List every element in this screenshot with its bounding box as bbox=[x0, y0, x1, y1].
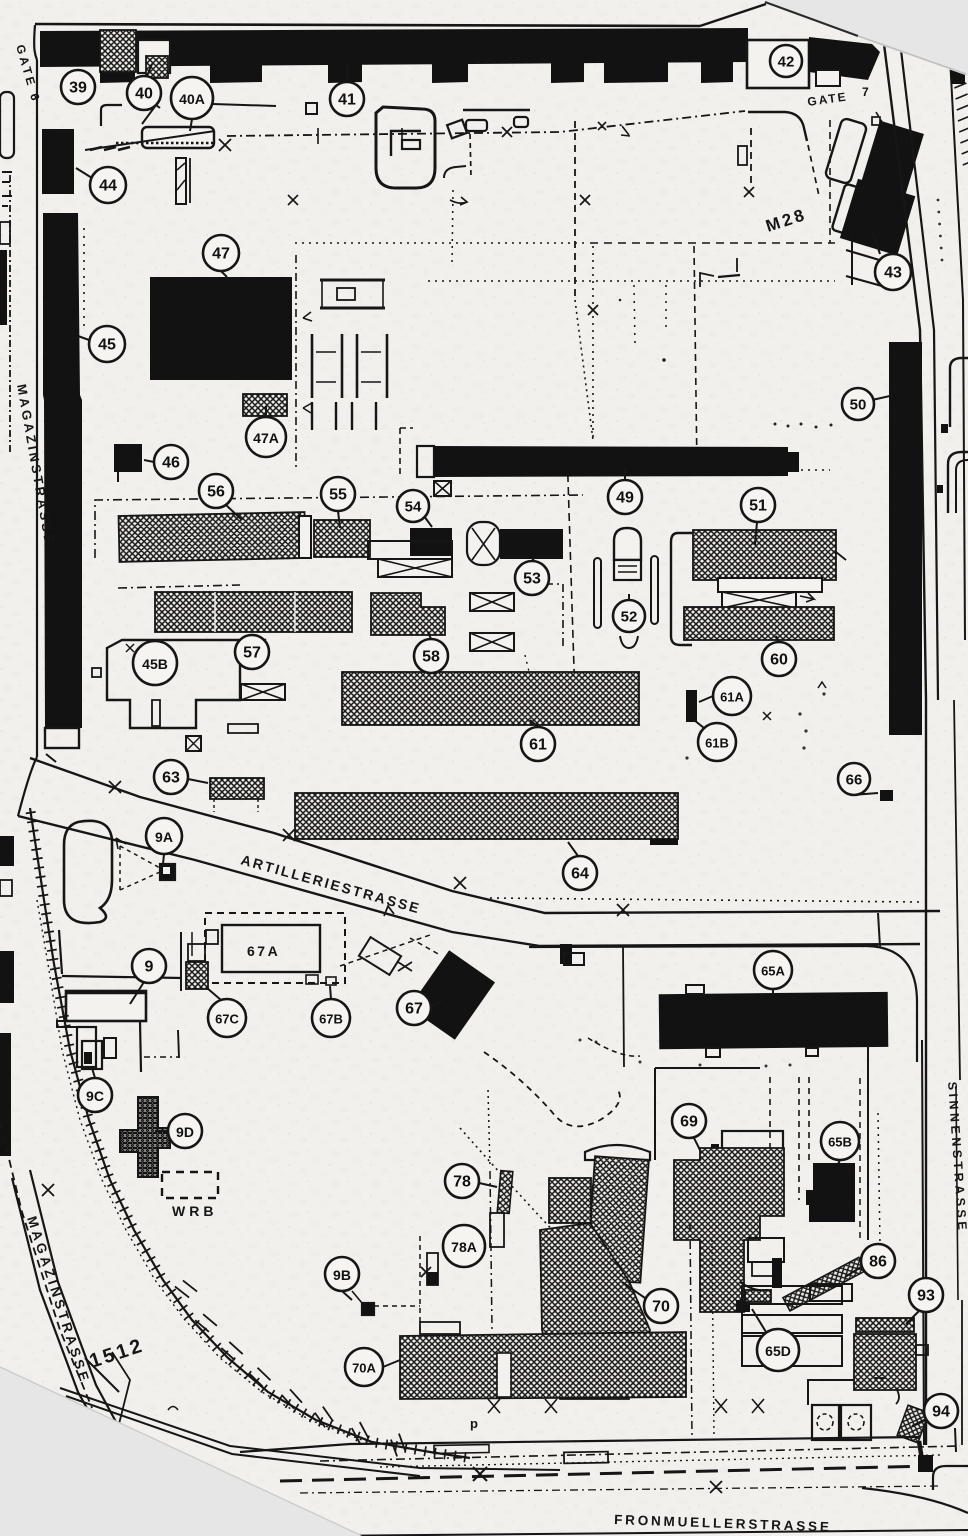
svg-text:61B: 61B bbox=[705, 736, 729, 751]
svg-text:64: 64 bbox=[571, 866, 589, 883]
svg-text:49: 49 bbox=[616, 490, 634, 507]
svg-text:44: 44 bbox=[99, 178, 117, 195]
svg-text:52: 52 bbox=[621, 609, 638, 626]
svg-text:45B: 45B bbox=[142, 656, 168, 672]
svg-text:56: 56 bbox=[207, 484, 225, 501]
svg-text:43: 43 bbox=[884, 265, 902, 282]
svg-text:47: 47 bbox=[212, 246, 230, 263]
svg-text:54: 54 bbox=[405, 499, 422, 516]
svg-text:61A: 61A bbox=[720, 690, 744, 705]
svg-text:86: 86 bbox=[869, 1254, 887, 1271]
svg-text:42: 42 bbox=[778, 54, 795, 71]
svg-text:50: 50 bbox=[850, 397, 867, 414]
svg-text:78A: 78A bbox=[451, 1239, 477, 1255]
svg-text:65B: 65B bbox=[828, 1135, 852, 1150]
svg-text:60: 60 bbox=[770, 652, 788, 669]
svg-text:70: 70 bbox=[652, 1299, 670, 1316]
svg-text:67C: 67C bbox=[215, 1012, 239, 1027]
svg-text:66: 66 bbox=[846, 772, 863, 789]
svg-text:67A: 67A bbox=[247, 943, 280, 959]
svg-text:55: 55 bbox=[329, 487, 347, 504]
svg-text:78: 78 bbox=[453, 1174, 471, 1191]
svg-text:93: 93 bbox=[917, 1288, 935, 1305]
svg-text:40: 40 bbox=[135, 86, 153, 103]
svg-text:67B: 67B bbox=[319, 1012, 343, 1027]
svg-text:7: 7 bbox=[862, 85, 869, 99]
svg-text:46: 46 bbox=[162, 455, 180, 472]
svg-text:94: 94 bbox=[932, 1404, 950, 1421]
svg-text:57: 57 bbox=[243, 645, 261, 662]
svg-text:61: 61 bbox=[529, 737, 547, 754]
svg-text:40A: 40A bbox=[179, 91, 205, 107]
svg-text:70A: 70A bbox=[352, 1361, 376, 1376]
svg-text:41: 41 bbox=[338, 92, 356, 109]
svg-text:51: 51 bbox=[749, 498, 767, 515]
svg-text:9: 9 bbox=[145, 959, 154, 976]
svg-text:9C: 9C bbox=[86, 1088, 104, 1104]
svg-text:67: 67 bbox=[405, 1001, 423, 1018]
svg-text:65D: 65D bbox=[765, 1343, 791, 1359]
svg-text:53: 53 bbox=[523, 571, 541, 588]
svg-text:65A: 65A bbox=[761, 964, 785, 979]
svg-text:39: 39 bbox=[69, 80, 87, 97]
svg-text:9B: 9B bbox=[333, 1267, 351, 1283]
svg-text:9D: 9D bbox=[176, 1124, 194, 1140]
svg-text:63: 63 bbox=[162, 770, 180, 787]
svg-text:WRB: WRB bbox=[172, 1203, 217, 1219]
svg-text:p: p bbox=[470, 1416, 478, 1431]
svg-text:47A: 47A bbox=[253, 430, 279, 446]
svg-text:69: 69 bbox=[680, 1114, 698, 1131]
svg-text:58: 58 bbox=[422, 649, 440, 666]
svg-text:9A: 9A bbox=[155, 829, 173, 845]
svg-text:45: 45 bbox=[98, 337, 116, 354]
